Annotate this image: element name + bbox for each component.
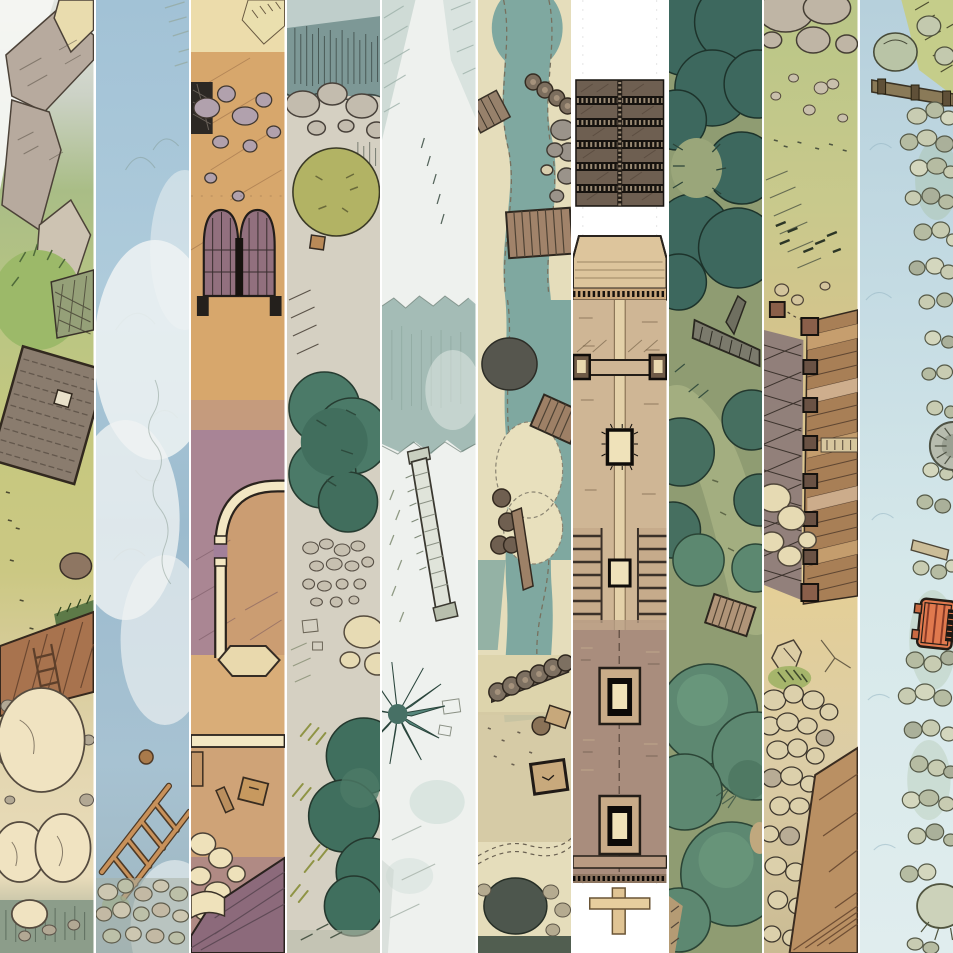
map-strip-7-wooden-pier [573,0,667,953]
map-strip-1-art [0,0,94,953]
map-strip-6-river-crossings [478,0,572,953]
map-strip-4-cliff-evergreens [287,0,381,953]
map-strip-8-art [669,0,763,953]
map-strip-7-art [573,0,667,953]
map-strip-6-art [478,0,572,953]
map-strip-4-art [287,0,381,953]
map-strip-3-art [191,0,285,953]
map-strip-2-art [96,0,190,953]
map-strip-5-art [382,0,476,953]
map-strip-9-art [764,0,858,953]
map-strip-1-rock-slabs-meadow-hut [0,0,94,953]
map-strip-2-misty-blue-water [96,0,190,953]
map-strip-5-icy-walkway [382,0,476,953]
map-strip-3-courtyard-gate [191,0,285,953]
map-strip-10-art [860,0,953,953]
map-strip-10-stony-shore-cart [860,0,953,953]
map-strip-8-forest-trail [669,0,763,953]
map-strip-9-palisade-rampart [764,0,858,953]
battle-map-strip-collage [0,0,953,953]
